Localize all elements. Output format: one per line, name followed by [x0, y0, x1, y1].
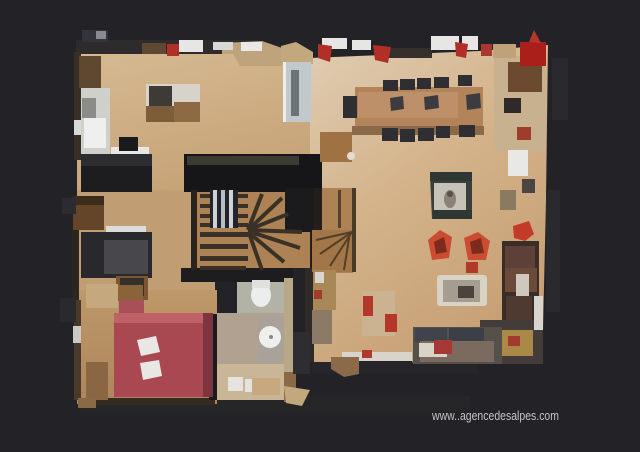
svg-text:www..agencedesalpes.com: www..agencedesalpes.com	[431, 409, 559, 423]
